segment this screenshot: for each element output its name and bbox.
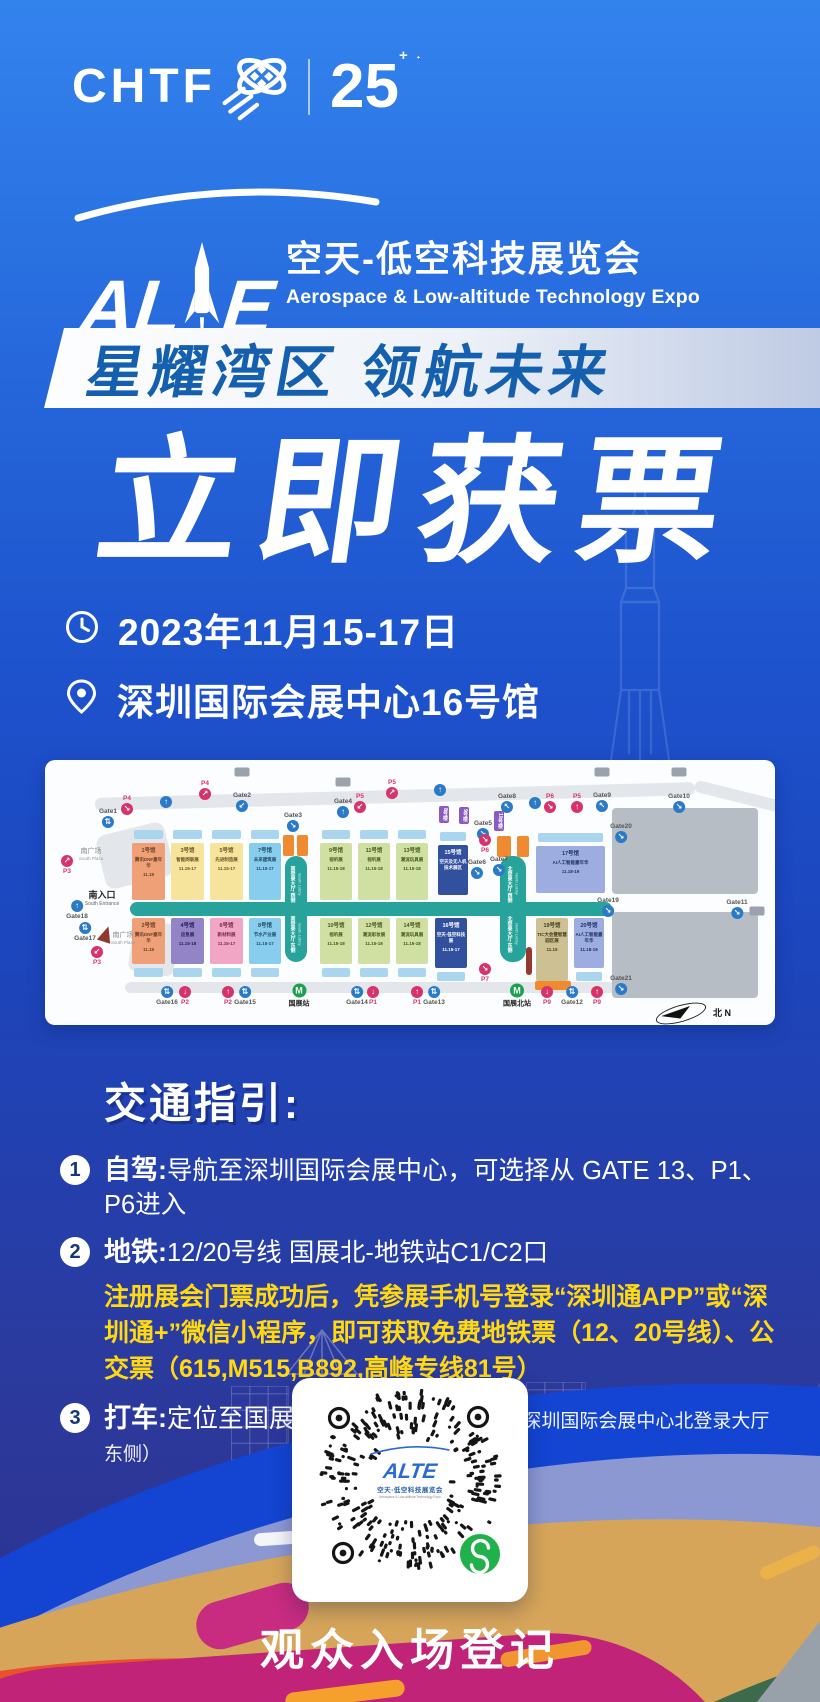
map-marker — [595, 768, 610, 777]
map-marker — [672, 768, 687, 777]
map-marker: Gate18 ↑ — [66, 900, 88, 920]
exhibition-hall: 12号馆 潮流彩妆展 11.15-18 — [358, 918, 390, 964]
map-marker: Gate21 ↘ — [610, 975, 632, 995]
map-marker: Gate7 ↘ — [490, 856, 508, 876]
exhibition-hall: 14号馆 潮流玩具展 11.15-18 — [396, 918, 428, 964]
anniversary-25: 25 — [330, 56, 399, 118]
map-orange-pill — [497, 836, 511, 857]
map-marker: Gate4 ↑ — [334, 798, 352, 818]
header: CHTF 25 — [72, 46, 399, 127]
expo-title-en: Aerospace & Low-altitude Technology Expo — [286, 286, 700, 309]
exhibition-hall: 17号馆 AI人工智能嘉年华 11.18-19 — [536, 846, 605, 893]
exhibition-hall: 15号馆 空天及无人机技术展区 — [438, 845, 468, 895]
qr-center-logo: ALTE 空天-低空科技展览会 Aerospace & Low-altitude… — [362, 1442, 458, 1512]
exhibition-hall: 3号馆 智能网联展 11.15-17 — [171, 843, 204, 900]
map-marker: Gate20 ↘ — [610, 823, 632, 843]
tower-label: 10号楼 — [494, 811, 504, 831]
map-marker: Gate12 ⇅ — [561, 986, 583, 1006]
map-marker: P2 ↓ — [179, 986, 191, 1006]
header-divider — [308, 59, 310, 115]
exhibition-hall: 19号馆 TIC大会暨智慧园区展 11.15 — [536, 918, 568, 981]
item-number-badge: 2 — [60, 1237, 90, 1267]
map-marker: Gate17 ⇅ — [74, 922, 96, 942]
map-marker: P1 ↑ — [411, 986, 423, 1006]
exhibition-hall: 9号馆 视听展 11.15-18 — [320, 843, 352, 900]
event-date-row: 2023年11月15-17日 — [64, 602, 540, 656]
map-marker: P5 ↙ — [354, 793, 366, 813]
map-marker: P3 ↗ — [61, 855, 73, 875]
slogan-banner: 星耀湾区 领航未来 — [0, 328, 820, 408]
map-marker: Gate13 ⇅ — [423, 986, 445, 1006]
chtf-wordmark: CHTF — [72, 59, 216, 114]
map-marker — [235, 768, 250, 777]
exhibition-hall: 13号馆 潮流玩具展 11.15-18 — [396, 843, 428, 900]
registration-qr-card[interactable]: ALTE 空天-低空科技展览会 Aerospace & Low-altitude… — [292, 1378, 528, 1602]
map-orange-pill — [283, 835, 294, 856]
map-marker: ↑ — [529, 797, 541, 809]
map-marker: P1 ↓ — [367, 986, 379, 1006]
metro-ticket-note: 注册展会门票成功后，凭参展手机号登录“深圳通APP”或“深圳通+”微信小程序，即… — [104, 1279, 780, 1388]
wechat-miniprogram-icon — [457, 1531, 503, 1582]
map-marker: ↑ — [160, 796, 172, 808]
traffic-item: 2 地铁:12/20号线 国展北-地铁站C1/C2口 注册展会门票成功后，凭参展… — [60, 1235, 784, 1387]
map-marker: 国展站 M — [289, 984, 310, 1009]
traffic-heading: 交通指引: — [104, 1070, 784, 1131]
map-marker: Gate19 ↘ — [597, 897, 619, 917]
clock-icon — [64, 609, 100, 650]
map-marker: P9 ↓ — [541, 986, 553, 1006]
alte-wordmark: AL E — [80, 216, 274, 341]
chtf-orbit-icon — [218, 46, 294, 127]
south-plaza-label-2: 南广场 South Plaza — [93, 930, 153, 945]
map-marker: P4 ↘ — [121, 795, 133, 815]
map-marker: Gate2 ↙ — [233, 792, 251, 812]
venue-map: 南入口 South Entrance 南广场 South Plaza 南广场 S… — [45, 760, 775, 1025]
map-marker: 国展北站 M — [503, 984, 531, 1009]
map-marker: P5 ↗ — [386, 779, 398, 799]
exhibition-hall: 8号馆 节水产业展 11.15-17 — [249, 918, 281, 964]
map-marker: Gate9 ↖ — [593, 792, 611, 812]
map-marker: Gate6 ↘ — [468, 859, 486, 879]
map-marker: P4 ↗ — [199, 780, 211, 800]
traffic-item: 1 自驾:导航至深圳国际会展中心，可选择从 GATE 13、P1、P6进入 — [60, 1153, 784, 1222]
map-marker — [750, 907, 765, 916]
exhibition-hall: 5号馆 先进制造展 11.15-17 — [210, 843, 243, 900]
map-marker: P5 ↑ — [571, 793, 583, 813]
event-info: 2023年11月15-17日 深圳国际会展中心16号馆 — [64, 602, 540, 742]
map-marker: ↑ — [434, 784, 446, 796]
map-red-pill — [526, 947, 532, 975]
qr-caption: 观众入场登记 — [0, 1614, 820, 1678]
expo-poster: CHTF 25 — [0, 0, 820, 1702]
map-marker: Gate10 ↘ — [668, 793, 690, 813]
item-number-badge: 3 — [60, 1403, 90, 1433]
expo-title-cn: 空天-低空科技展览会 — [286, 230, 700, 282]
map-orange-pill — [297, 835, 308, 856]
compass: 北 N — [655, 1000, 745, 1025]
exhibition-hall: 10号馆 视听展 11.15-18 — [320, 918, 352, 964]
event-date: 2023年11月15-17日 — [118, 602, 459, 656]
exhibition-hall: 4号馆 应急展 11.15-18 — [171, 918, 204, 964]
map-marker: P6 ↘ — [479, 834, 491, 854]
map-marker: Gate16 ⇅ — [156, 986, 178, 1006]
map-marker: Gate14 ⇅ — [346, 986, 368, 1006]
map-orange-pill — [517, 836, 529, 857]
map-marker: Gate1 ⇅ — [99, 808, 117, 828]
central-corridor — [130, 902, 612, 916]
exhibition-hall: 1号馆 腾讯DNF嘉年华 11.18 — [132, 843, 165, 900]
get-ticket-cta: 立即获票 — [0, 434, 820, 572]
exhibition-hall: 16号馆 空天-低空科技展 11.15-17 — [435, 918, 467, 968]
map-marker: P6 ↘ — [544, 793, 556, 813]
alte-brand: AL E 空天-低空科技展览会 Aerospace & Low-altitude… — [80, 190, 780, 305]
map-marker: Gate11 ↘ — [726, 899, 747, 919]
location-pin-icon — [64, 678, 99, 721]
map-marker — [336, 778, 351, 787]
exhibition-hall: 6号馆 新材料展 11.15-17 — [210, 918, 243, 964]
lobby-oval: 南登录大厅·西侧South Lobby 南登录大厅·东侧South Lobby — [285, 856, 307, 962]
map-marker: P3 ↙ — [91, 946, 103, 966]
map-marker: Gate15 ⇅ — [234, 986, 256, 1006]
map-marker: P2 ↑ — [222, 986, 234, 1006]
event-venue-row: 深圳国际会展中心16号馆 — [64, 672, 540, 726]
tower-label: 9号楼 — [459, 807, 469, 824]
tower-label: 8号楼 — [439, 806, 449, 823]
map-marker: P7 ↘ — [479, 963, 491, 983]
map-marker: Gate8 ↖ — [498, 793, 516, 813]
map-marker: P9 ↑ — [591, 986, 603, 1006]
slogan-text: 星耀湾区 领航未来 — [81, 327, 621, 409]
exhibition-hall: 7号馆 未来建筑展 11.15-17 — [249, 843, 281, 900]
item-number-badge: 1 — [60, 1155, 90, 1185]
event-venue: 深圳国际会展中心16号馆 — [117, 672, 540, 726]
exhibition-hall: 20号馆 AI人工智能嘉年华 11.18-19 — [574, 918, 604, 968]
map-marker: Gate3 ↘ — [284, 812, 302, 832]
exhibition-hall: 11号馆 视听展 11.15-18 — [358, 843, 390, 900]
